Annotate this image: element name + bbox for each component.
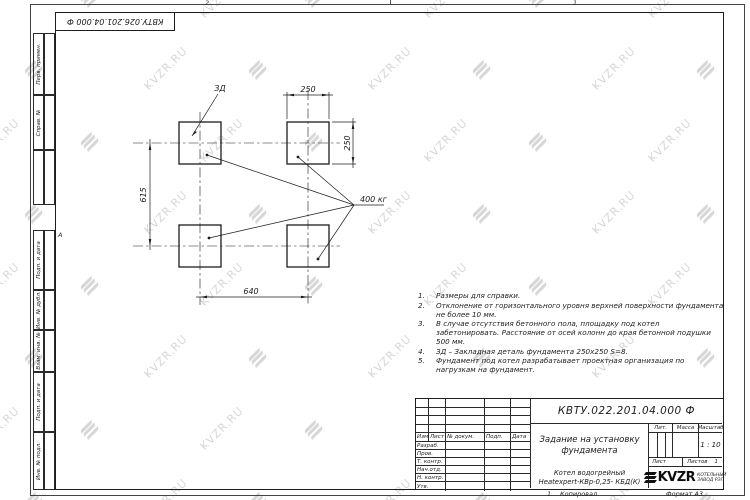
embed-detail-label: ЗД	[214, 84, 225, 93]
drawing-sheet: KVZR.RUKVZR.RUKVZR.RUKVZR.RUKVZR.RUKVZR.…	[0, 0, 750, 500]
sheets-value: 1	[715, 459, 719, 465]
role-utv: Утв.	[416, 482, 446, 490]
lit-value-cell	[649, 433, 673, 458]
bottom-margin-number: 1	[547, 490, 551, 498]
role-row: Утв.	[416, 482, 530, 490]
title-block-left-part: Изм Лист № докум. Подп. Дата Разраб. Про…	[416, 399, 530, 488]
header-list: Лист	[429, 433, 446, 442]
mass-header: Масса	[673, 424, 699, 433]
scale-header: Масштаб	[699, 424, 722, 433]
product-name: Котел водогрейный Heatexpert-КВр-0,25- К…	[530, 467, 649, 488]
sheet-cell: Лист	[649, 458, 683, 467]
role-razrab: Разраб.	[416, 442, 446, 450]
role-row: Н. контр.	[416, 474, 530, 482]
header-sign: Подп.	[485, 433, 511, 442]
title-block: Изм Лист № докум. Подп. Дата Разраб. Про…	[415, 398, 724, 490]
note-item-5: 5.Фундамент под котел разрабатывает прое…	[418, 356, 724, 374]
copied-label: Копировал	[560, 490, 597, 498]
scale-value: 1 : 10	[699, 433, 722, 458]
role-t-kontr: Т. контр.	[416, 458, 446, 466]
dimension-lines	[150, 92, 384, 297]
role-n-kontr: Н. контр.	[416, 474, 446, 482]
title-block-header-row: Изм Лист № докум. Подп. Дата	[416, 433, 530, 442]
kvzr-logo-icon	[645, 471, 656, 484]
dim-615-left: 615	[139, 187, 148, 202]
sheets-label: Листов	[687, 459, 708, 465]
format-label: Формат А3	[666, 490, 703, 498]
sheets-cell: Листов 1	[683, 458, 722, 467]
load-label: 400 кг	[360, 195, 388, 204]
note-item-2: 2.Отклонение от горизонтального уровня в…	[418, 301, 724, 319]
note-item-4: 4.ЗД – Закладная деталь фундамента 250х2…	[418, 347, 724, 356]
note-item-3: 3.В случае отсутствия бетонного пола, пл…	[418, 319, 724, 346]
role-row: Разраб.	[416, 442, 530, 450]
header-docnum: № докум.	[446, 433, 485, 442]
company-cell: KVZR КОТЕЛЬНЫЙ ЗАВОД РЭП	[649, 467, 722, 488]
lit-header: Лит.	[649, 424, 673, 433]
header-date: Дата	[511, 433, 530, 442]
note-item-1: 1.Размеры для справки.	[418, 291, 724, 300]
notes-list: 1.Размеры для справки. 2.Отклонение от г…	[418, 291, 724, 375]
foundation-blocks	[179, 122, 329, 267]
dim-250-right: 250	[343, 135, 352, 150]
document-designation: КВТУ.022.201.04.000 Ф	[530, 399, 722, 424]
role-nach-otd: Нач.отд.	[416, 466, 446, 474]
role-row: Пров.	[416, 450, 530, 458]
role-prov: Пров.	[416, 450, 446, 458]
kvzr-logo-text: KVZR	[658, 470, 696, 485]
dim-250-top: 250	[300, 85, 315, 94]
role-row: Т. контр.	[416, 458, 530, 466]
dim-640-bottom: 640	[243, 287, 258, 296]
mass-value-cell	[673, 433, 699, 458]
header-izm: Изм	[416, 433, 429, 442]
document-title: Задание на установку фундамента	[530, 424, 649, 467]
company-subtitle: КОТЕЛЬНЫЙ ЗАВОД РЭП	[697, 473, 726, 483]
role-row: Нач.отд.	[416, 466, 530, 474]
